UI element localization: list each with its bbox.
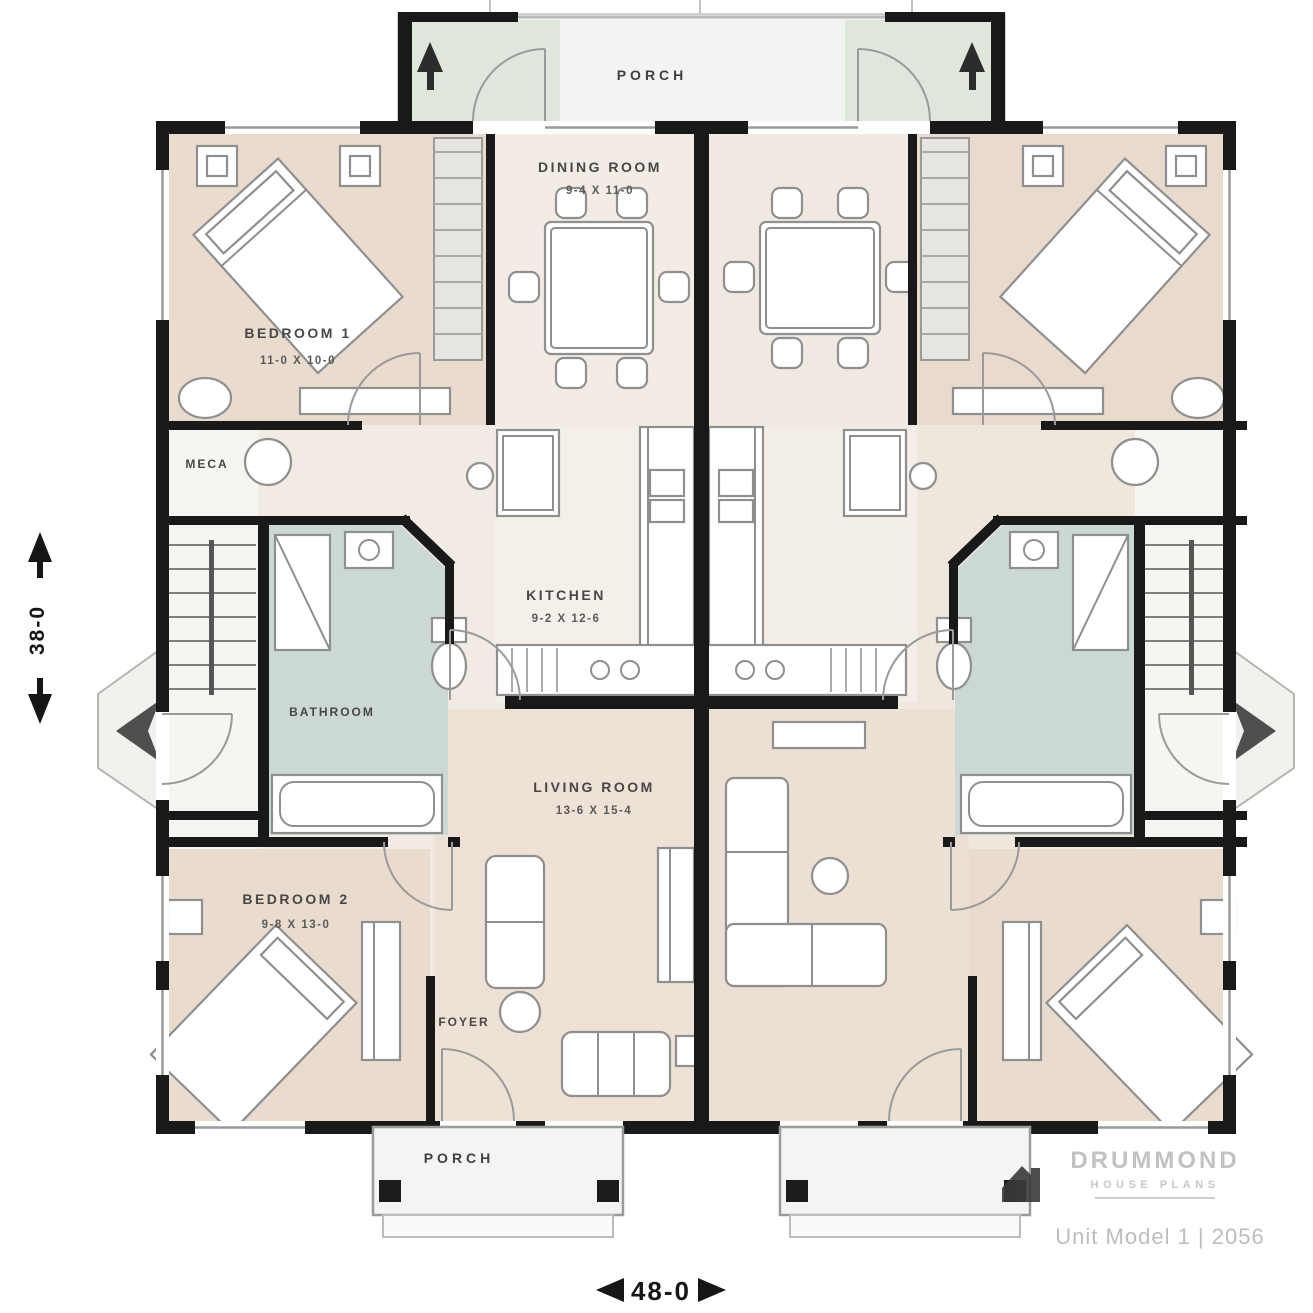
dining-label: DINING ROOM	[538, 159, 662, 175]
sofa-icon	[562, 1032, 670, 1096]
right-closet	[921, 138, 969, 360]
bedroom1-dims: 11-0 X 10-0	[260, 355, 336, 367]
coffee-table-icon	[500, 992, 540, 1032]
unit2-water-heater-icon	[1112, 439, 1158, 485]
bathroom-sink-icon	[345, 532, 393, 568]
watermark-brand-sub: HOUSE PLANS	[1091, 1179, 1220, 1191]
kitchen-label: KITCHEN	[526, 587, 606, 603]
unit2-dining-table-icon	[760, 222, 880, 334]
meca-label: MECA	[185, 457, 228, 471]
chair-icon	[467, 463, 493, 489]
left-bay-window	[98, 648, 162, 812]
bathroom-label: BATHROOM	[289, 705, 375, 719]
watermark-brand: DRUMMOND	[1070, 1147, 1239, 1174]
porch-post-icon	[379, 1180, 401, 1202]
bottom-porch-left: PORCH	[373, 1127, 623, 1237]
width-dimension-label: 48-0	[631, 1276, 691, 1306]
top-porch: PORCH	[398, 12, 1005, 124]
left-closet	[434, 138, 482, 360]
height-dimension-label: 38-0	[26, 605, 49, 655]
bedroom1-label: BEDROOM 1	[244, 325, 351, 341]
living-dims: 13-6 X 15-4	[556, 805, 633, 817]
kitchen-dims: 9-2 X 12-6	[532, 613, 601, 625]
floor-plan-page: PORCH	[0, 0, 1313, 1313]
tv-unit-icon	[658, 848, 694, 982]
pouf-icon	[179, 378, 231, 418]
wardrobe-icon	[362, 922, 400, 1060]
height-dimension: 38-0	[26, 532, 52, 724]
width-dimension: 48-0	[596, 1276, 726, 1306]
watermark: DRUMMOND HOUSE PLANS Unit Model 1 | 2056	[1002, 1147, 1265, 1249]
bottom-porch-label: PORCH	[424, 1150, 495, 1166]
water-heater-icon	[245, 439, 291, 485]
bedroom2-dims: 9-8 X 13-0	[262, 919, 331, 931]
floor-plan-drawing: PORCH	[0, 0, 1313, 1313]
dresser-icon	[300, 388, 450, 414]
top-porch-label: PORCH	[617, 67, 688, 83]
dining-dims: 9-4 X 11-0	[566, 185, 634, 197]
bottom-porch-right	[780, 1127, 1030, 1237]
living-label: LIVING ROOM	[533, 779, 655, 795]
foyer-label: FOYER	[438, 1015, 489, 1029]
unit2-fridge-icon	[844, 430, 906, 516]
bedroom2-label: BEDROOM 2	[242, 891, 349, 907]
bathtub-icon	[272, 775, 442, 833]
watermark-plan-ref: Unit Model 1 | 2056	[1055, 1224, 1264, 1249]
dining-table-icon	[545, 222, 653, 354]
porch-post-icon	[597, 1180, 619, 1202]
right-bay-window	[1230, 648, 1294, 812]
fridge-icon	[497, 430, 559, 516]
unit2-stair-floor	[1135, 427, 1223, 849]
console-table-icon	[773, 722, 865, 748]
porch-post-icon	[786, 1180, 808, 1202]
party-wall	[694, 121, 709, 1134]
sink-icon	[650, 470, 684, 496]
